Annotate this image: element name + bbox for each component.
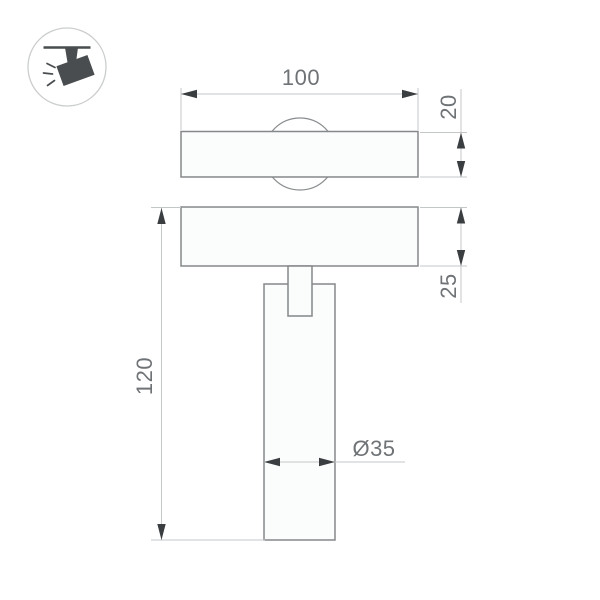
- dim-plate-height-label: 25: [436, 273, 461, 298]
- track-spotlight-icon: [28, 28, 106, 106]
- front-view: [181, 207, 418, 540]
- arrowhead: [457, 161, 465, 177]
- dim-tube-diameter-label: Ø35: [352, 436, 395, 461]
- dimension-plate-height: 25: [420, 208, 467, 304]
- dim-overall-height-label: 120: [132, 357, 157, 395]
- front-view-stem: [288, 266, 312, 316]
- luminaire-dimension-drawing: 100 20 25 120: [0, 0, 600, 600]
- front-view-base-plate: [181, 207, 418, 266]
- arrowhead: [157, 524, 165, 540]
- top-view-body: [181, 132, 418, 178]
- arrowhead: [457, 208, 465, 224]
- arrowhead: [157, 208, 165, 224]
- dimension-width: 100: [181, 65, 418, 130]
- technical-drawing-canvas: 100 20 25 120: [0, 0, 600, 600]
- arrowhead: [457, 133, 465, 149]
- dim-track-body-height-label: 20: [436, 94, 461, 119]
- arrowhead: [181, 90, 197, 98]
- arrowhead: [457, 250, 465, 266]
- front-view-cylinder: [264, 284, 335, 540]
- arrowhead: [402, 90, 418, 98]
- dimension-track-body-height: 20: [420, 89, 467, 177]
- dim-width-label: 100: [282, 65, 320, 90]
- icon-light-ray: [44, 73, 53, 74]
- top-view: [181, 118, 418, 190]
